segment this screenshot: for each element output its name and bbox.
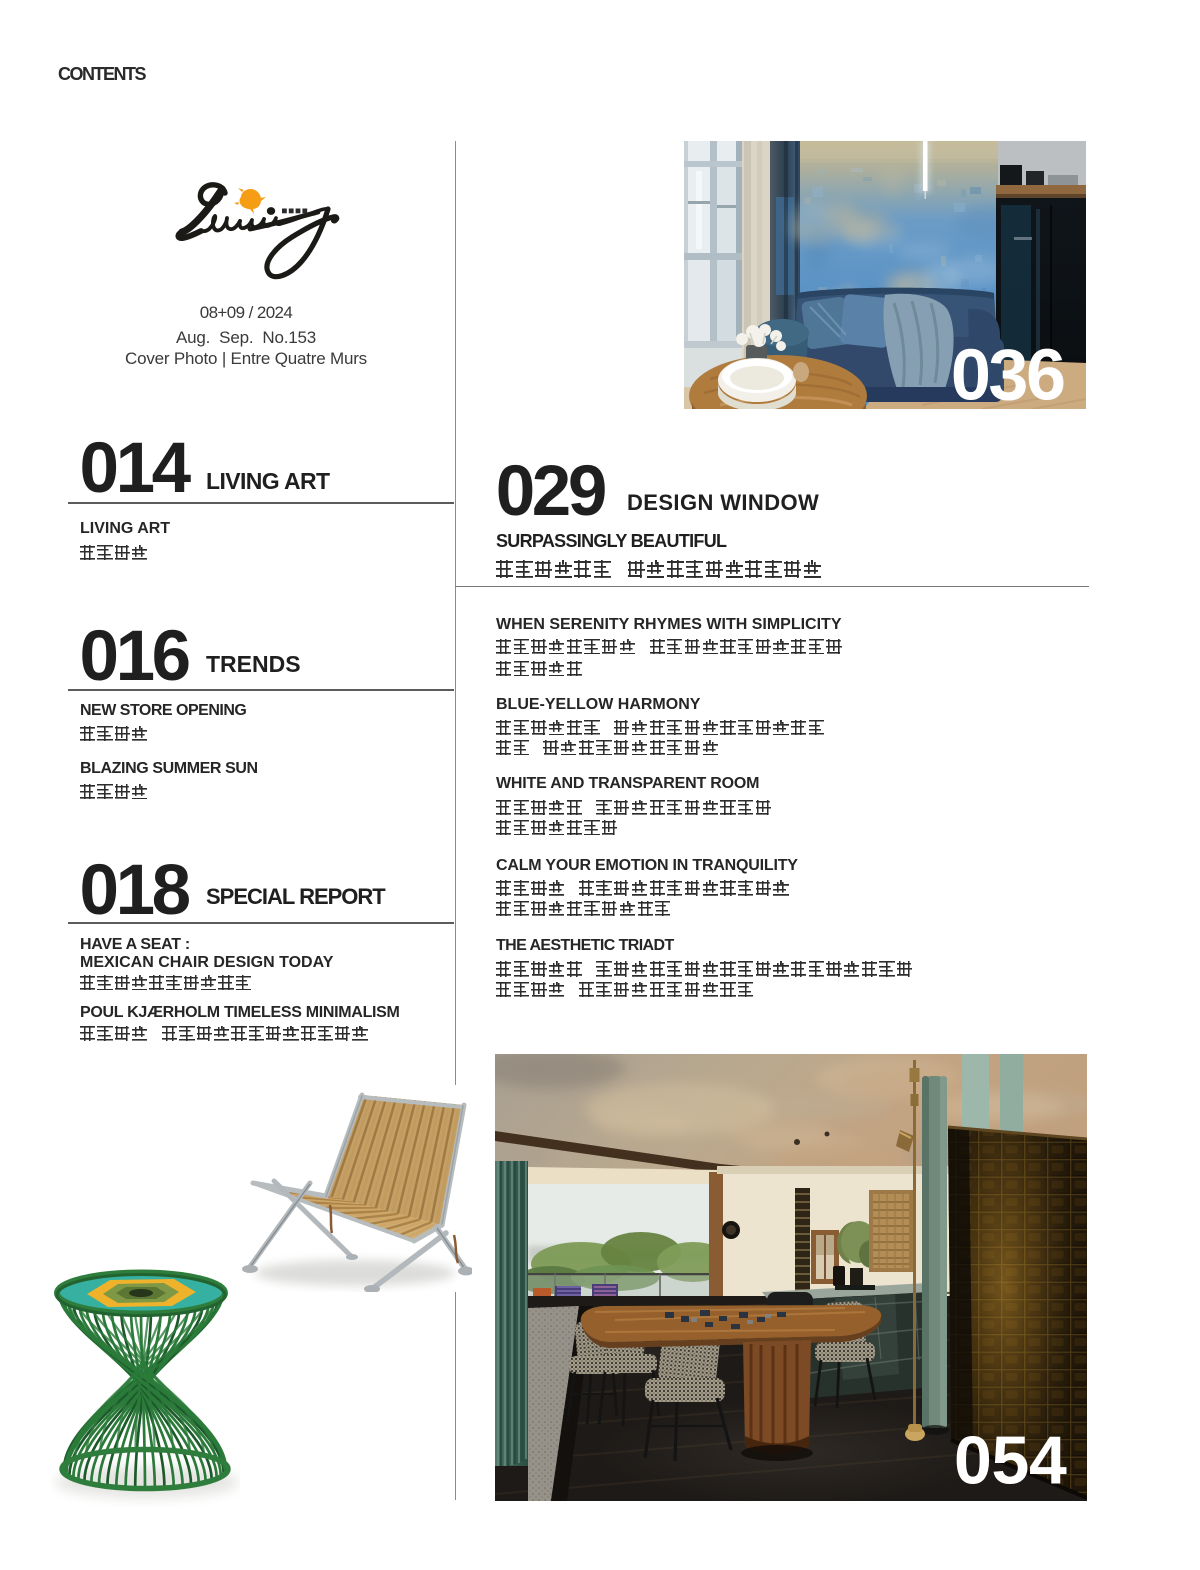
svg-text:054: 054 — [954, 1423, 1067, 1499]
svg-text:036: 036 — [951, 336, 1064, 410]
